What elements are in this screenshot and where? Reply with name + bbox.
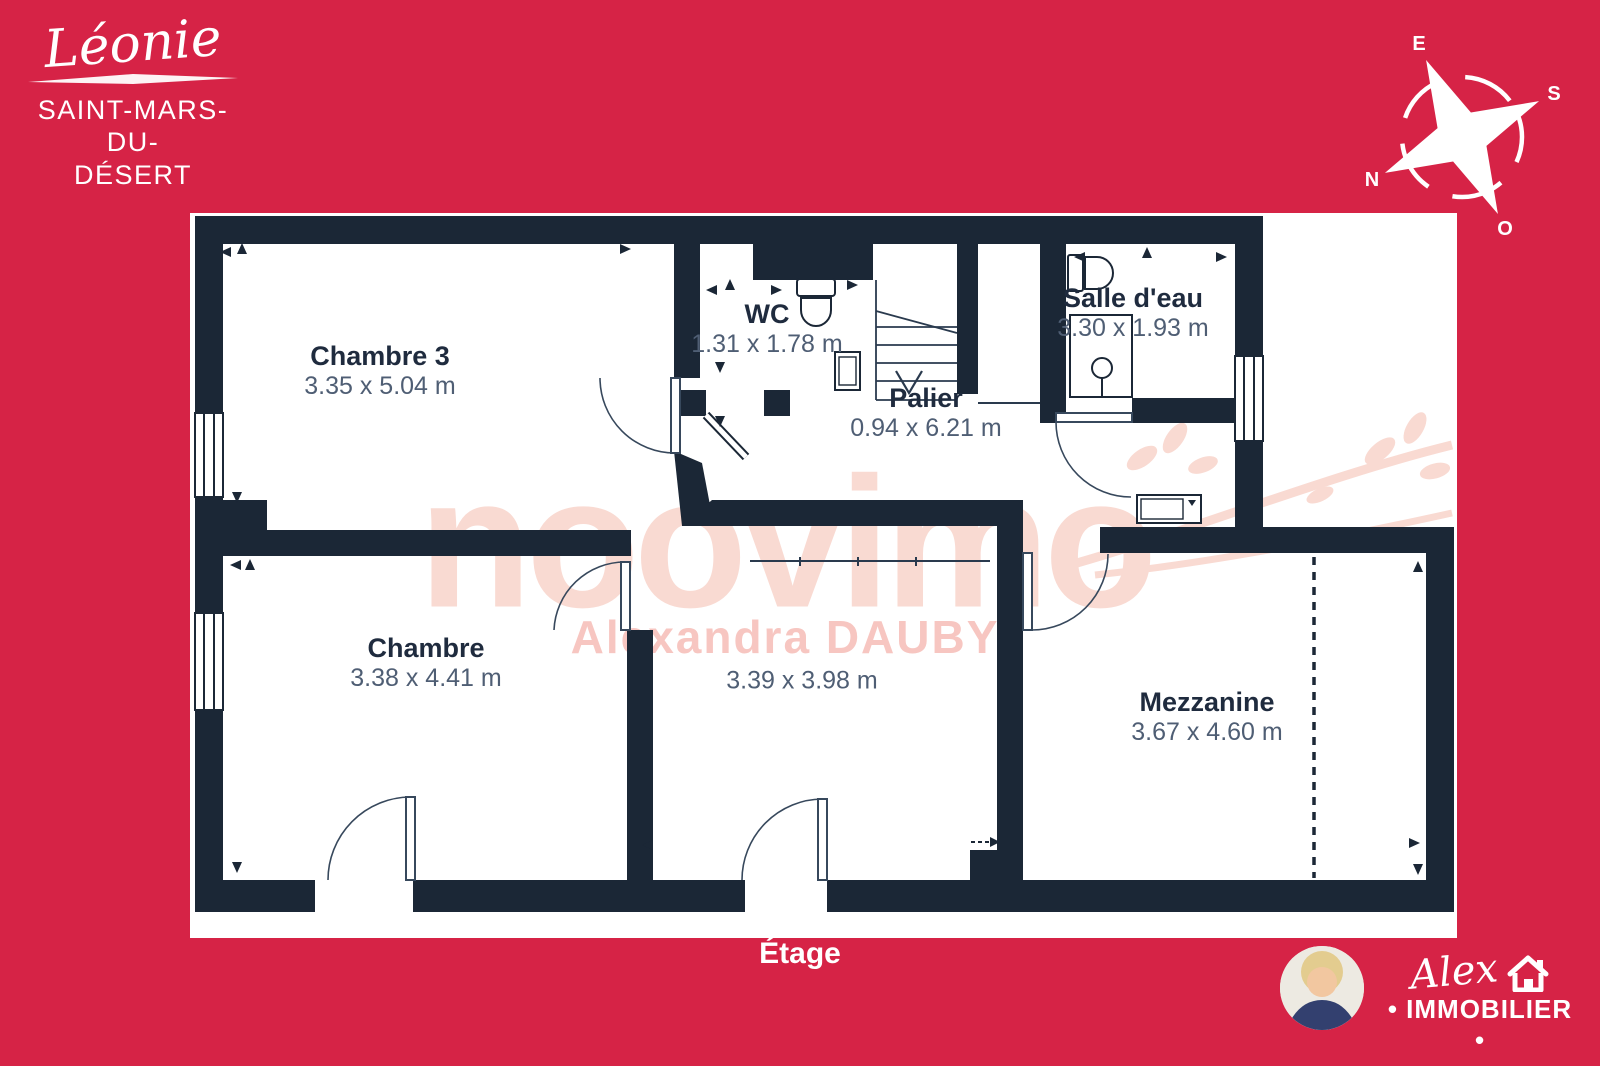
stairs bbox=[876, 280, 957, 400]
compass-letter-e: E bbox=[1412, 33, 1425, 55]
room-label-palier: Palier 0.94 x 6.21 m bbox=[850, 383, 1001, 443]
floor-title: Étage bbox=[0, 937, 1600, 971]
room-label-salle-deau: Salle d'eau 3.30 x 1.93 m bbox=[1057, 283, 1208, 343]
step-arrow bbox=[971, 837, 1000, 847]
city-line-2: DÉSERT bbox=[18, 159, 248, 191]
room-label-chambre3: Chambre 3 3.35 x 5.04 m bbox=[304, 341, 455, 401]
compass-letter-s: S bbox=[1547, 83, 1560, 105]
room-name: Salle d'eau bbox=[1057, 283, 1208, 314]
compass-letter-o: O bbox=[1497, 218, 1513, 240]
room-name: Chambre 3 bbox=[304, 341, 455, 372]
room-label-center-room: 3.39 x 3.98 m bbox=[726, 667, 877, 696]
estate-branding: Léonie SAINT-MARS-DU- DÉSERT bbox=[18, 18, 248, 191]
compass-letter-n: N bbox=[1365, 169, 1379, 191]
room-dims: 3.35 x 5.04 m bbox=[304, 372, 455, 401]
room-name: Chambre bbox=[350, 633, 501, 664]
room-label-chambre: Chambre 3.38 x 4.41 m bbox=[350, 633, 501, 693]
flyer-page: Léonie SAINT-MARS-DU- DÉSERT E S N O noo… bbox=[0, 0, 1600, 1066]
toilet-icon bbox=[797, 279, 835, 296]
room-dims: 3.30 x 1.93 m bbox=[1057, 314, 1208, 343]
room-label-wc: WC 1.31 x 1.78 m bbox=[691, 299, 842, 359]
room-name: Mezzanine bbox=[1131, 687, 1282, 718]
city-line-1: SAINT-MARS-DU- bbox=[18, 94, 248, 159]
room-name: Palier bbox=[850, 383, 1001, 414]
room-dims: 3.39 x 3.98 m bbox=[726, 667, 877, 696]
agency-name-caps: • IMMOBILIER • bbox=[1385, 994, 1575, 1056]
room-dims: 0.94 x 6.21 m bbox=[850, 414, 1001, 443]
floor-plan: noovimo Alexandra DAUBY bbox=[190, 213, 1457, 938]
room-label-mezzanine: Mezzanine 3.67 x 4.60 m bbox=[1131, 687, 1282, 747]
room-dims: 3.67 x 4.60 m bbox=[1131, 718, 1282, 747]
estate-name: Léonie bbox=[43, 12, 224, 76]
room-dims: 3.38 x 4.41 m bbox=[350, 664, 501, 693]
room-name: WC bbox=[691, 299, 842, 330]
room-dims: 1.31 x 1.78 m bbox=[691, 330, 842, 359]
